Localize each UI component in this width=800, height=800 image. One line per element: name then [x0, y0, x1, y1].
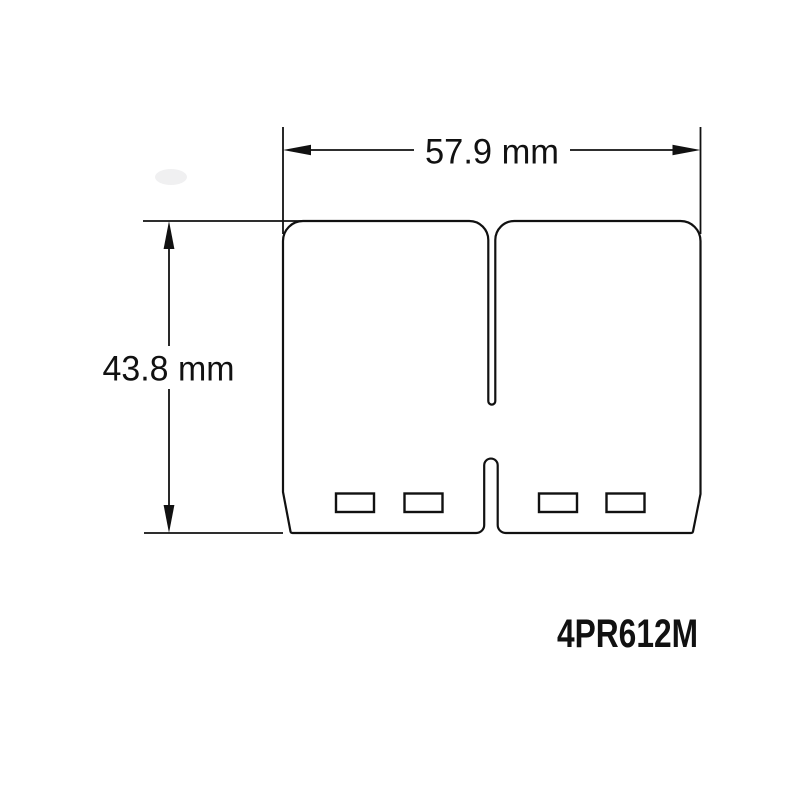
svg-text:4PR612M: 4PR612M: [557, 612, 698, 656]
svg-text:43.8 mm: 43.8 mm: [103, 350, 235, 389]
svg-text:57.9 mm: 57.9 mm: [425, 133, 559, 172]
